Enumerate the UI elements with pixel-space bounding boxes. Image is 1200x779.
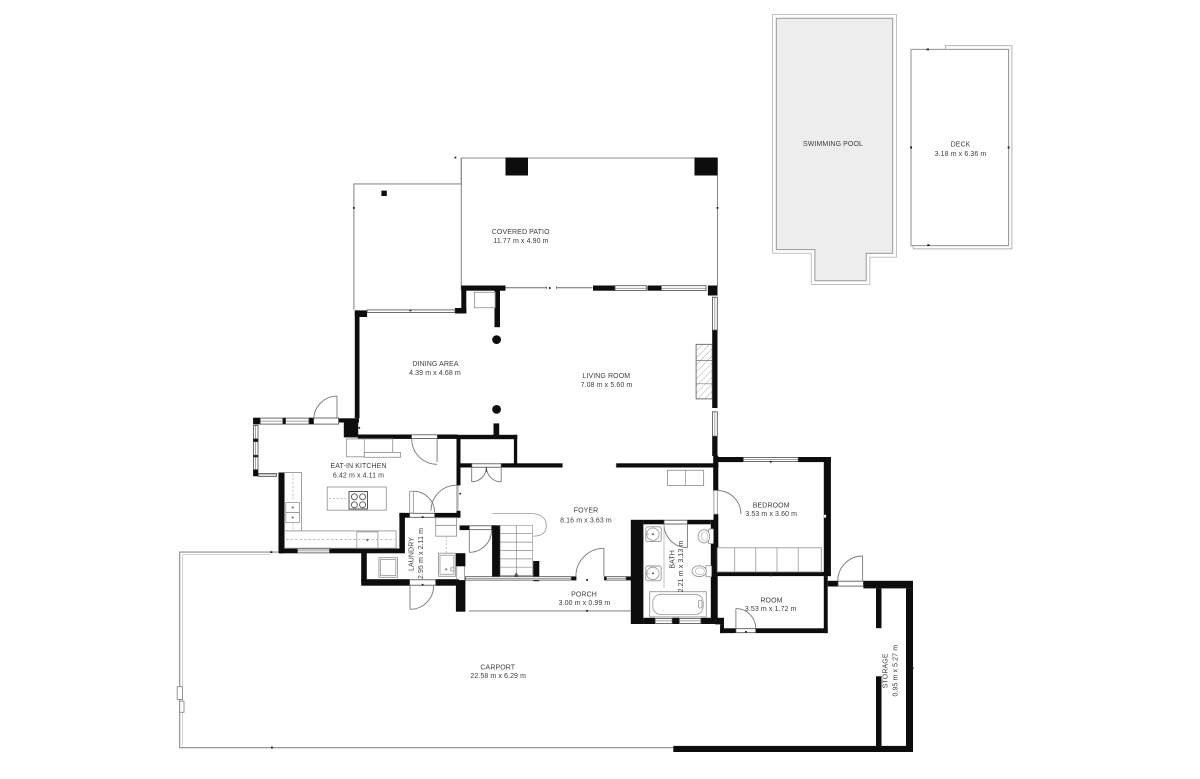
svg-text:CARPORT: CARPORT (480, 664, 515, 671)
svg-text:2.95 m x 2.11 m: 2.95 m x 2.11 m (418, 528, 425, 579)
svg-text:PORCH: PORCH (571, 591, 597, 598)
svg-text:6.42 m x 4.11 m: 6.42 m x 4.11 m (333, 472, 384, 479)
svg-text:EAT-IN KITCHEN: EAT-IN KITCHEN (331, 463, 387, 470)
svg-text:22.58 m x 6.29 m: 22.58 m x 6.29 m (470, 673, 526, 680)
svg-text:DECK: DECK (951, 142, 971, 149)
svg-text:STORAGE: STORAGE (883, 653, 890, 688)
svg-text:DINING AREA: DINING AREA (412, 361, 458, 368)
svg-text:FOYER: FOYER (574, 508, 599, 515)
svg-text:3.53 m x 1.72 m: 3.53 m x 1.72 m (745, 606, 797, 613)
svg-text:8.16 m x 3.63 m: 8.16 m x 3.63 m (560, 517, 612, 524)
svg-text:BATH: BATH (670, 550, 677, 569)
svg-text:ROOM: ROOM (760, 597, 782, 604)
svg-text:LAUNDRY: LAUNDRY (409, 537, 416, 571)
svg-text:3.18 m x 6.36 m: 3.18 m x 6.36 m (935, 151, 987, 158)
svg-text:11.77 m x 4.90 m: 11.77 m x 4.90 m (493, 238, 548, 245)
svg-text:3.53 m x 3.60 m: 3.53 m x 3.60 m (745, 511, 797, 518)
svg-text:7.08 m x 5.60 m: 7.08 m x 5.60 m (581, 382, 633, 389)
svg-text:BEDROOM: BEDROOM (753, 503, 790, 510)
svg-text:LIVING ROOM: LIVING ROOM (582, 373, 630, 380)
svg-text:4.39 m x 4.68 m: 4.39 m x 4.68 m (409, 370, 461, 377)
svg-text:0.95 m x 5.27 m: 0.95 m x 5.27 m (893, 645, 900, 697)
svg-text:COVERED PATIO: COVERED PATIO (492, 229, 550, 236)
svg-text:SWIMMING POOL: SWIMMING POOL (803, 141, 863, 148)
svg-text:3.00 m x 0.99 m: 3.00 m x 0.99 m (559, 600, 611, 607)
svg-text:2.21 m x 3.13 m: 2.21 m x 3.13 m (678, 541, 685, 593)
